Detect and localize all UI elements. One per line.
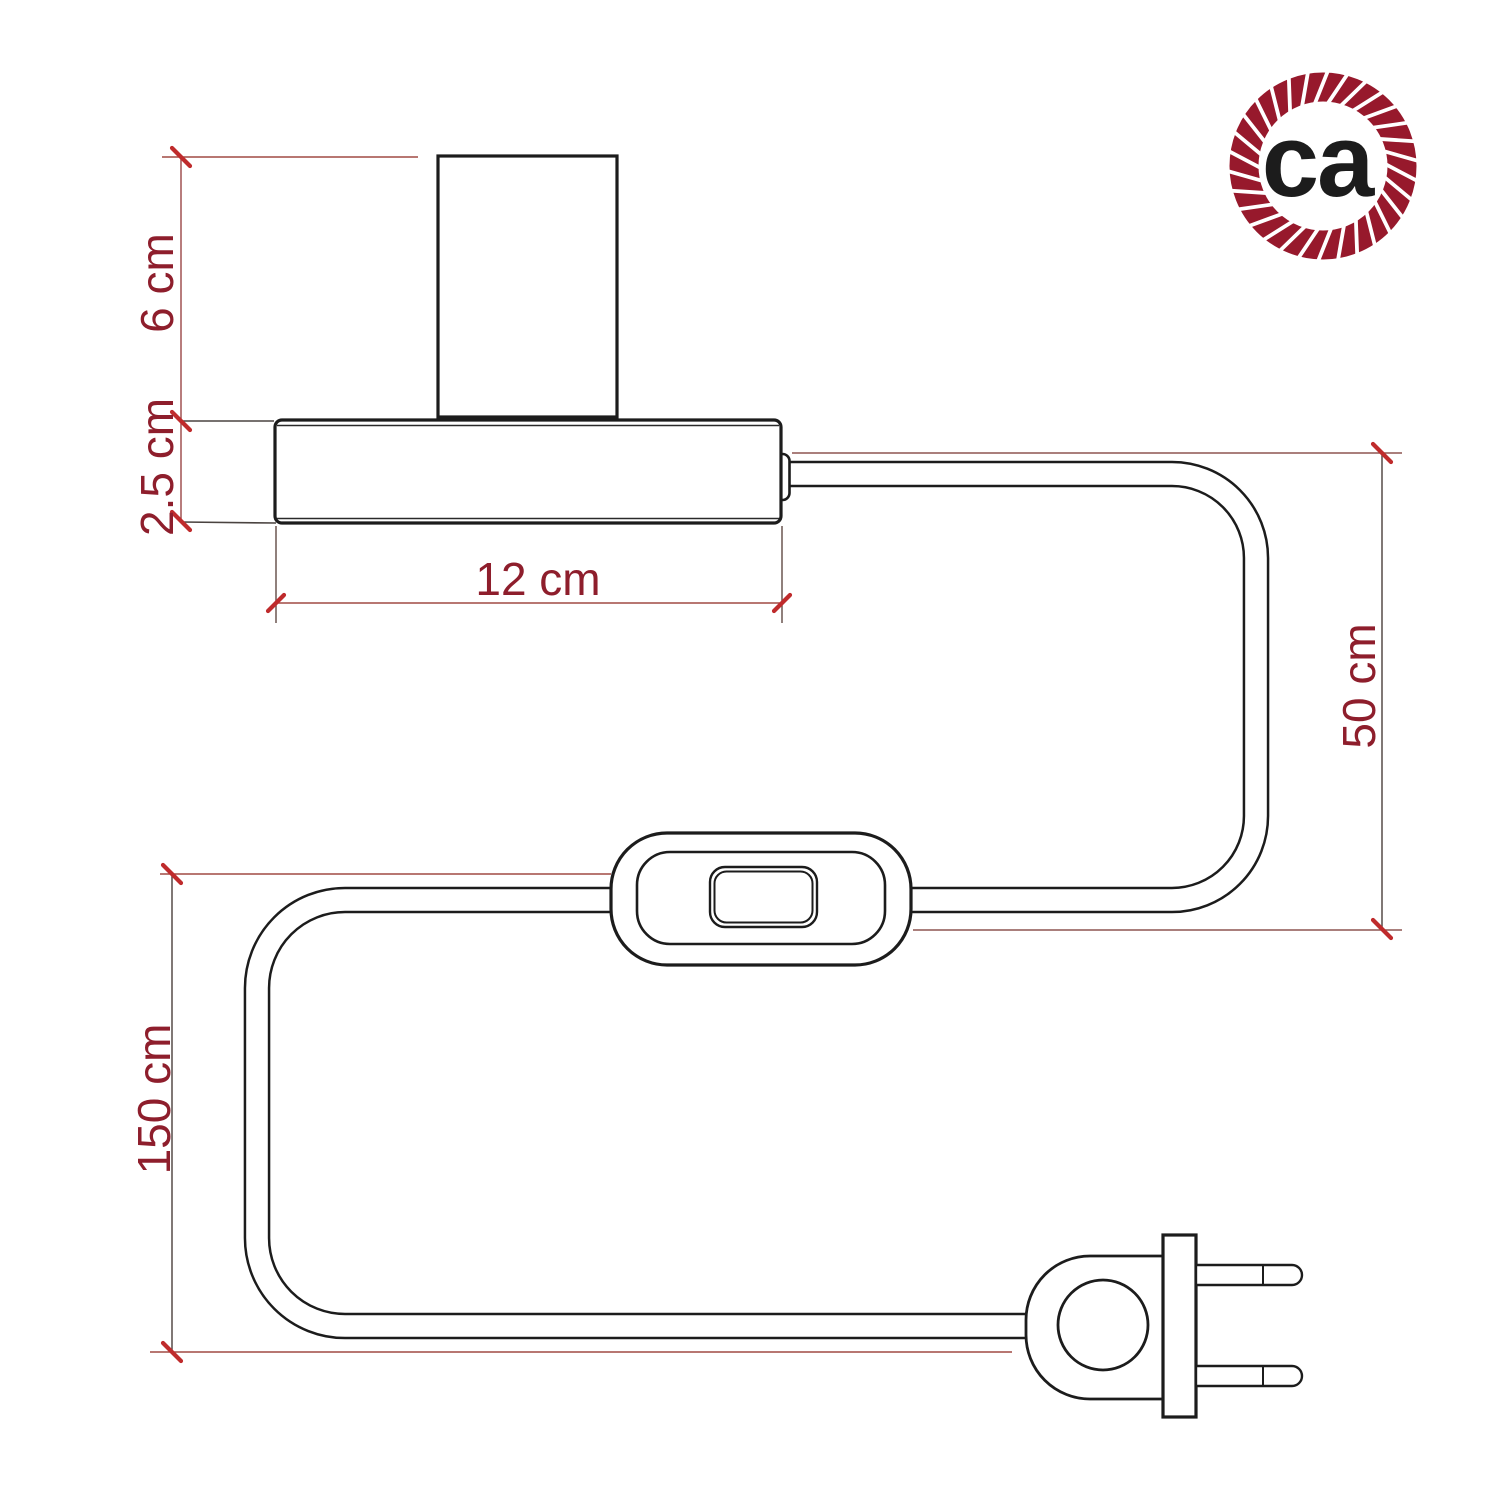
svg-text:ca: ca	[1262, 103, 1375, 218]
svg-text:50 cm: 50 cm	[1333, 623, 1385, 748]
svg-text:12 cm: 12 cm	[475, 553, 600, 605]
svg-text:6 cm: 6 cm	[131, 233, 183, 333]
svg-text:150 cm: 150 cm	[128, 1024, 180, 1175]
svg-text:2.5 cm: 2.5 cm	[131, 398, 183, 536]
